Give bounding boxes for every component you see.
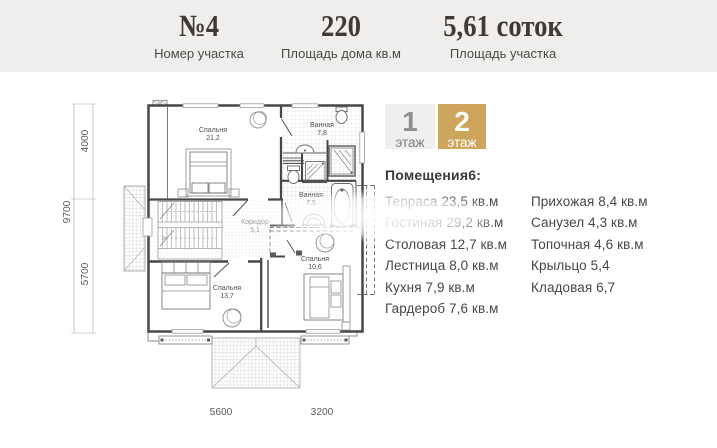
svg-text:5600: 5600 <box>210 407 233 418</box>
svg-text:Спальня: Спальня <box>213 285 241 292</box>
svg-text:Ванная: Ванная <box>310 122 334 129</box>
svg-text:13,7: 13,7 <box>220 293 234 300</box>
svg-text:10,6: 10,6 <box>308 264 322 271</box>
svg-text:5700: 5700 <box>80 262 91 285</box>
svg-text:7,8: 7,8 <box>317 130 327 137</box>
svg-text:9700: 9700 <box>62 200 73 223</box>
svg-text:Спальня: Спальня <box>301 256 329 263</box>
svg-text:3200: 3200 <box>311 407 334 418</box>
svg-text:Спальня: Спальня <box>199 127 227 134</box>
svg-text:4000: 4000 <box>80 129 91 152</box>
svg-text:21,2: 21,2 <box>206 135 220 142</box>
